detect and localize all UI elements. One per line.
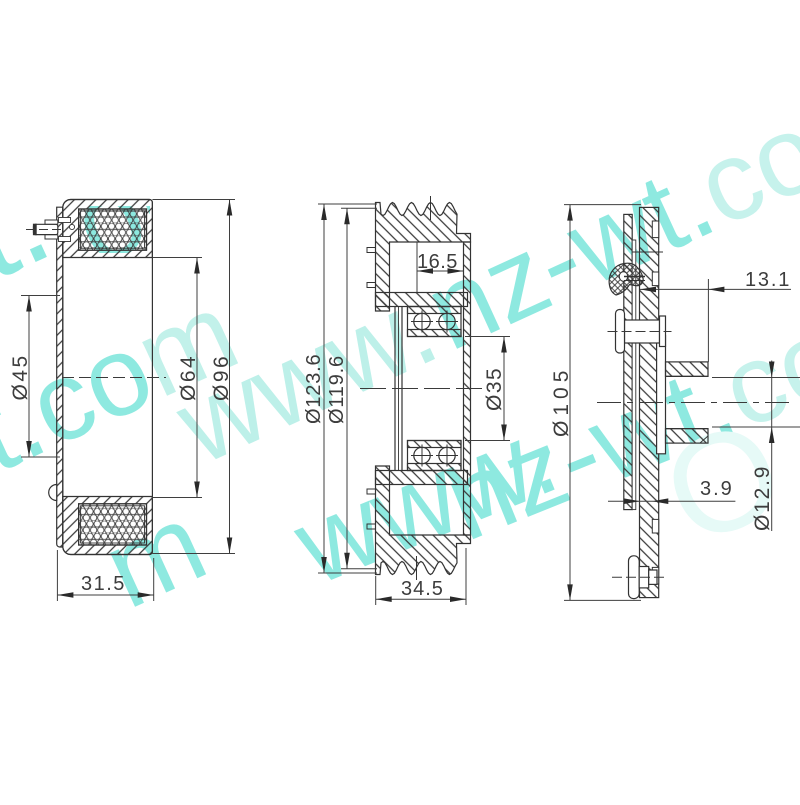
svg-text:Ø45: Ø45 (9, 353, 32, 400)
svg-text:Ø96: Ø96 (210, 354, 233, 401)
svg-text:16.5: 16.5 (417, 251, 458, 273)
svg-text:31.5: 31.5 (81, 573, 126, 595)
svg-text:34.5: 34.5 (401, 578, 444, 600)
svg-text:13.1: 13.1 (745, 269, 791, 291)
svg-text:Ø105: Ø105 (550, 366, 573, 437)
svg-text:Ø119.6: Ø119.6 (326, 355, 348, 424)
svg-text:Ø64: Ø64 (177, 354, 200, 401)
svg-text:Ø123.6: Ø123.6 (303, 354, 325, 424)
svg-text:Ø12.9: Ø12.9 (751, 465, 774, 531)
svg-text:3.9: 3.9 (700, 478, 734, 500)
svg-text:Ø35: Ø35 (483, 367, 506, 411)
